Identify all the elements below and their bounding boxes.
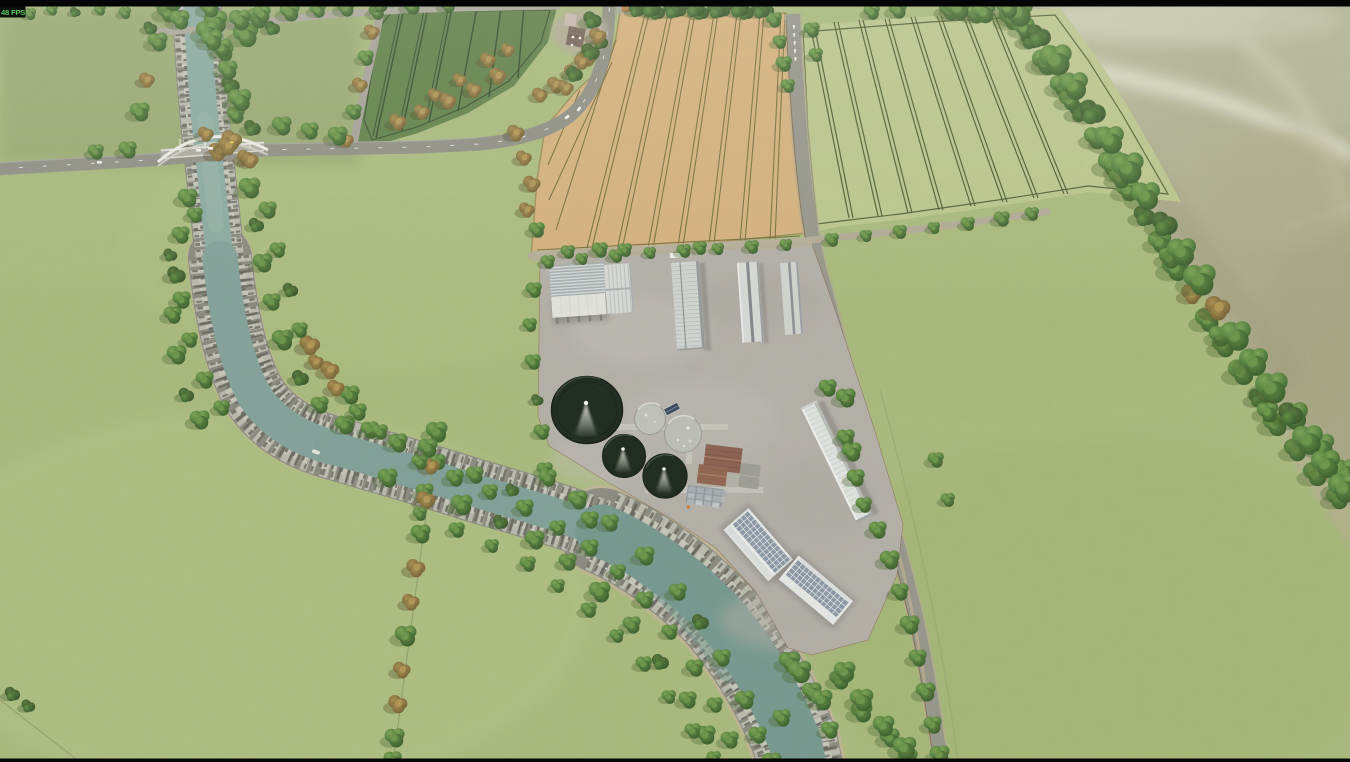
svg-text:48 FPS: 48 FPS: [1, 8, 25, 17]
